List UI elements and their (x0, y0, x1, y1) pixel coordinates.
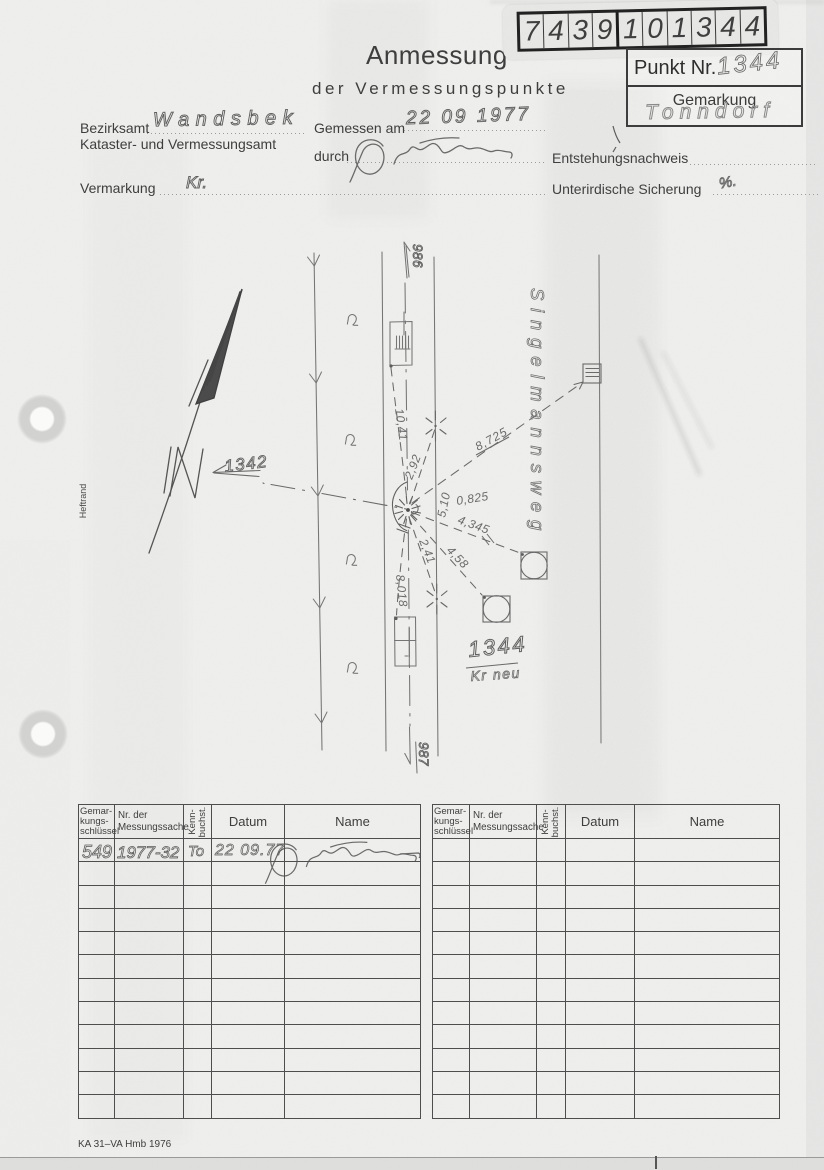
svg-text:10,41: 10,41 (392, 407, 410, 441)
svg-text:2,41: 2,41 (416, 536, 439, 566)
svg-text:Singelmannsweg: Singelmannsweg (527, 288, 548, 538)
svg-text:2,92: 2,92 (401, 452, 424, 482)
svg-text:0,825: 0,825 (455, 489, 489, 508)
svg-text:1342: 1342 (223, 452, 269, 476)
svg-text:986: 986 (410, 244, 425, 268)
svg-text:8,018: 8,018 (393, 574, 410, 608)
svg-text:5,10: 5,10 (434, 491, 453, 519)
svg-text:Kr neu: Kr neu (470, 665, 521, 684)
svg-text:987: 987 (416, 742, 431, 766)
svg-text:1344: 1344 (467, 631, 528, 662)
svg-text:4,58: 4,58 (444, 543, 472, 571)
svg-text:4,345: 4,345 (456, 513, 491, 537)
